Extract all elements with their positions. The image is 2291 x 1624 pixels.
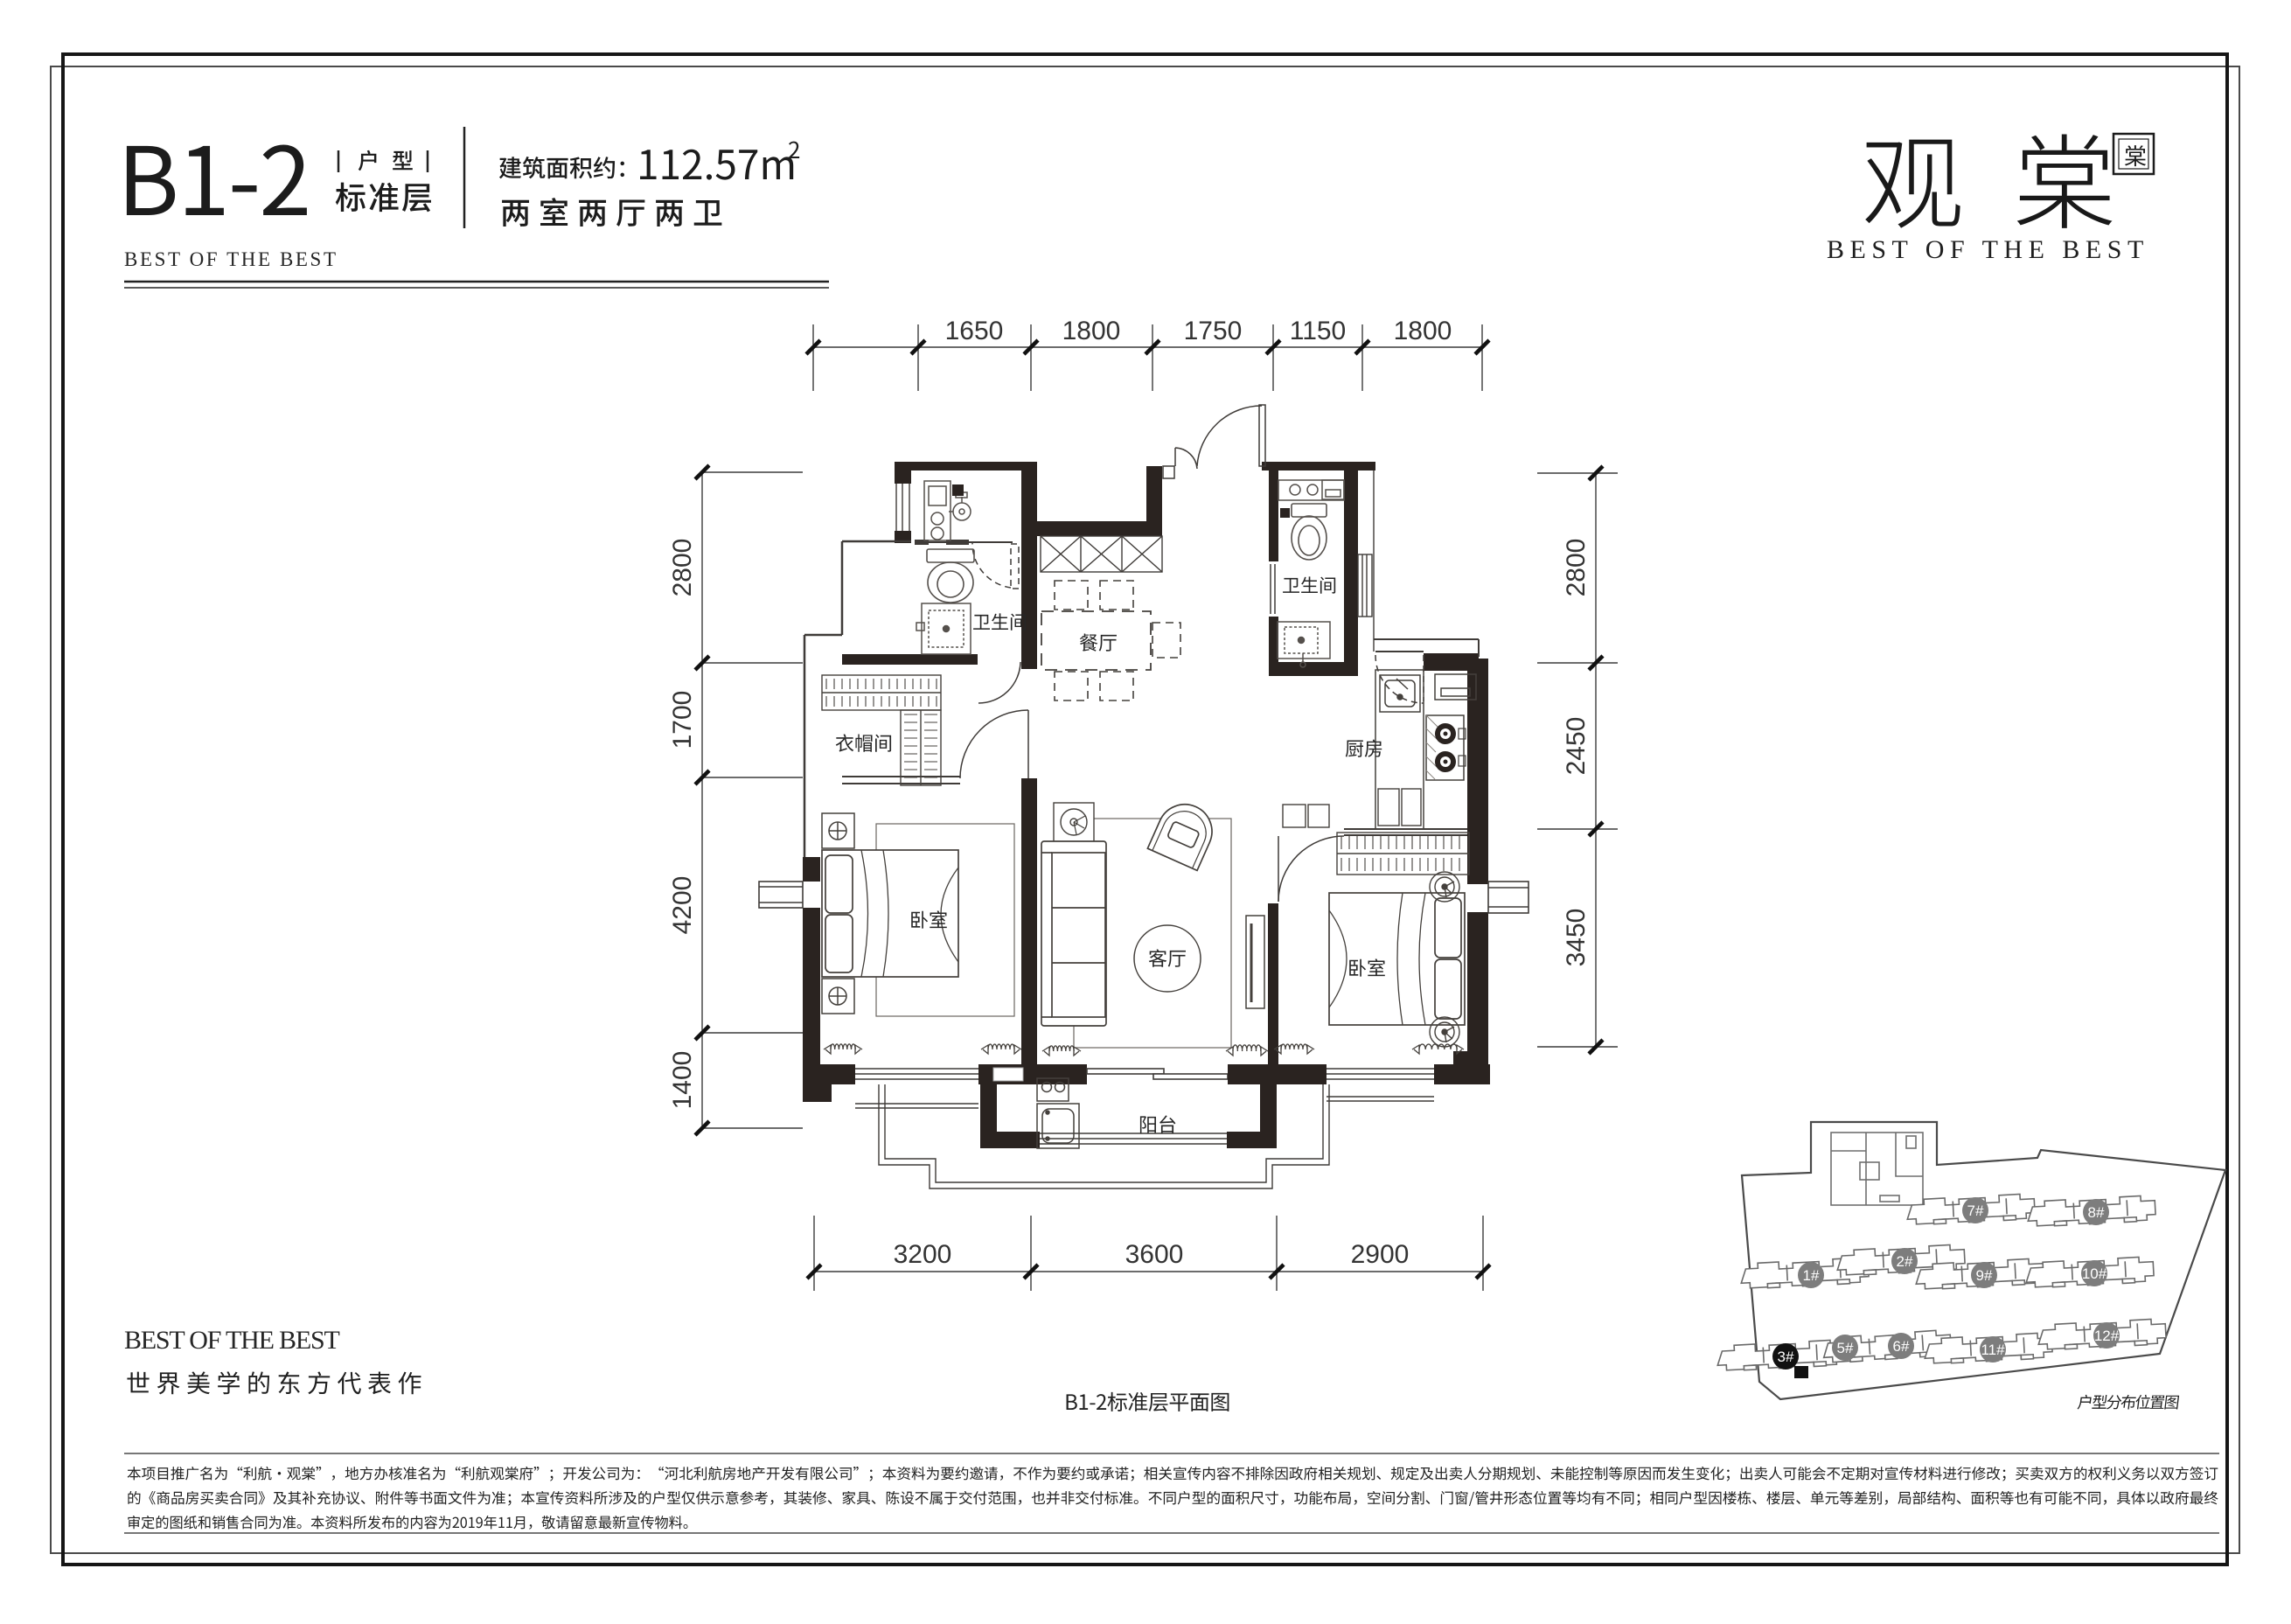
svg-text:2800: 2800	[668, 539, 697, 597]
svg-text:衣帽间: 衣帽间	[835, 728, 893, 756]
svg-text:标准层: 标准层	[335, 173, 435, 219]
svg-text:卫生间: 卫生间	[1282, 572, 1337, 598]
svg-text:的《商品房买卖合同》及其补充协议、附件等书面文件为准；本宣传: 的《商品房买卖合同》及其补充协议、附件等书面文件为准；本宣传资料所涉及的户型仅供…	[127, 1487, 2218, 1508]
svg-text:3450: 3450	[1562, 909, 1591, 967]
svg-text:8#: 8#	[2088, 1204, 2105, 1221]
svg-text:1800: 1800	[1062, 317, 1121, 345]
svg-text:10#: 10#	[2082, 1265, 2107, 1282]
svg-text:112.57m: 112.57m	[637, 134, 797, 192]
svg-text:3200: 3200	[894, 1240, 952, 1269]
svg-text:1150: 1150	[1290, 317, 1347, 345]
svg-text:2: 2	[788, 133, 800, 165]
svg-text:2900: 2900	[1351, 1240, 1410, 1269]
svg-text:2800: 2800	[1562, 539, 1591, 597]
svg-text:12#: 12#	[2094, 1328, 2120, 1344]
svg-text:户型分布位置图: 户型分布位置图	[2076, 1391, 2180, 1413]
svg-text:审定的图纸和销售合同为准。本资料所发布的内容为2019年11: 审定的图纸和销售合同为准。本资料所发布的内容为2019年11月，敬请留意最新宣传…	[127, 1511, 697, 1532]
svg-text:BEST OF THE BEST: BEST OF THE BEST	[124, 248, 338, 270]
svg-text:B1-2: B1-2	[117, 107, 310, 243]
svg-text:7#: 7#	[1967, 1202, 1984, 1219]
svg-text:两室两厅两卫: 两室两厅两卫	[500, 189, 731, 233]
svg-text:B1-2标准层平面图: B1-2标准层平面图	[1064, 1385, 1230, 1416]
svg-text:餐厅: 餐厅	[1079, 628, 1118, 656]
svg-text:1800: 1800	[1394, 317, 1452, 345]
svg-text:1750: 1750	[1184, 317, 1243, 345]
svg-text:客厅: 客厅	[1148, 944, 1187, 972]
svg-text:阳台: 阳台	[1139, 1110, 1177, 1138]
svg-text:本项目推广名为“利航·观棠”，地方办核准名为“利航观棠府”；: 本项目推广名为“利航·观棠”，地方办核准名为“利航观棠府”；开发公司为：“河北利…	[127, 1462, 2218, 1483]
svg-text:2450: 2450	[1562, 717, 1591, 776]
svg-text:1#: 1#	[1803, 1267, 1820, 1284]
svg-text:11#: 11#	[1981, 1342, 2005, 1358]
svg-text:卫生间: 卫生间	[972, 609, 1027, 635]
svg-text:1700: 1700	[668, 691, 697, 749]
svg-text:6#: 6#	[1893, 1338, 1910, 1355]
svg-text:BEST OF THE BEST: BEST OF THE BEST	[1827, 235, 2149, 264]
svg-text:卧室: 卧室	[909, 905, 948, 933]
svg-text:9#: 9#	[1976, 1267, 1993, 1284]
svg-text:棠: 棠	[2124, 139, 2147, 171]
svg-text:建筑面积约：: 建筑面积约：	[498, 150, 640, 184]
svg-text:观棠: 观棠	[1861, 101, 2165, 250]
svg-text:BEST OF THE BEST: BEST OF THE BEST	[124, 1326, 339, 1355]
svg-text:户型: 户型	[358, 144, 426, 176]
svg-text:世界美学的东方代表作: 世界美学的东方代表作	[126, 1365, 428, 1400]
svg-text:厨房: 厨房	[1345, 734, 1383, 762]
svg-text:1400: 1400	[668, 1051, 697, 1110]
svg-text:3600: 3600	[1125, 1240, 1184, 1269]
svg-text:卧室: 卧室	[1347, 953, 1386, 981]
svg-text:3#: 3#	[1778, 1349, 1794, 1365]
svg-text:4200: 4200	[668, 876, 697, 935]
svg-text:5#: 5#	[1837, 1340, 1854, 1356]
svg-text:1650: 1650	[945, 317, 1004, 345]
svg-text:2#: 2#	[1897, 1253, 1913, 1270]
